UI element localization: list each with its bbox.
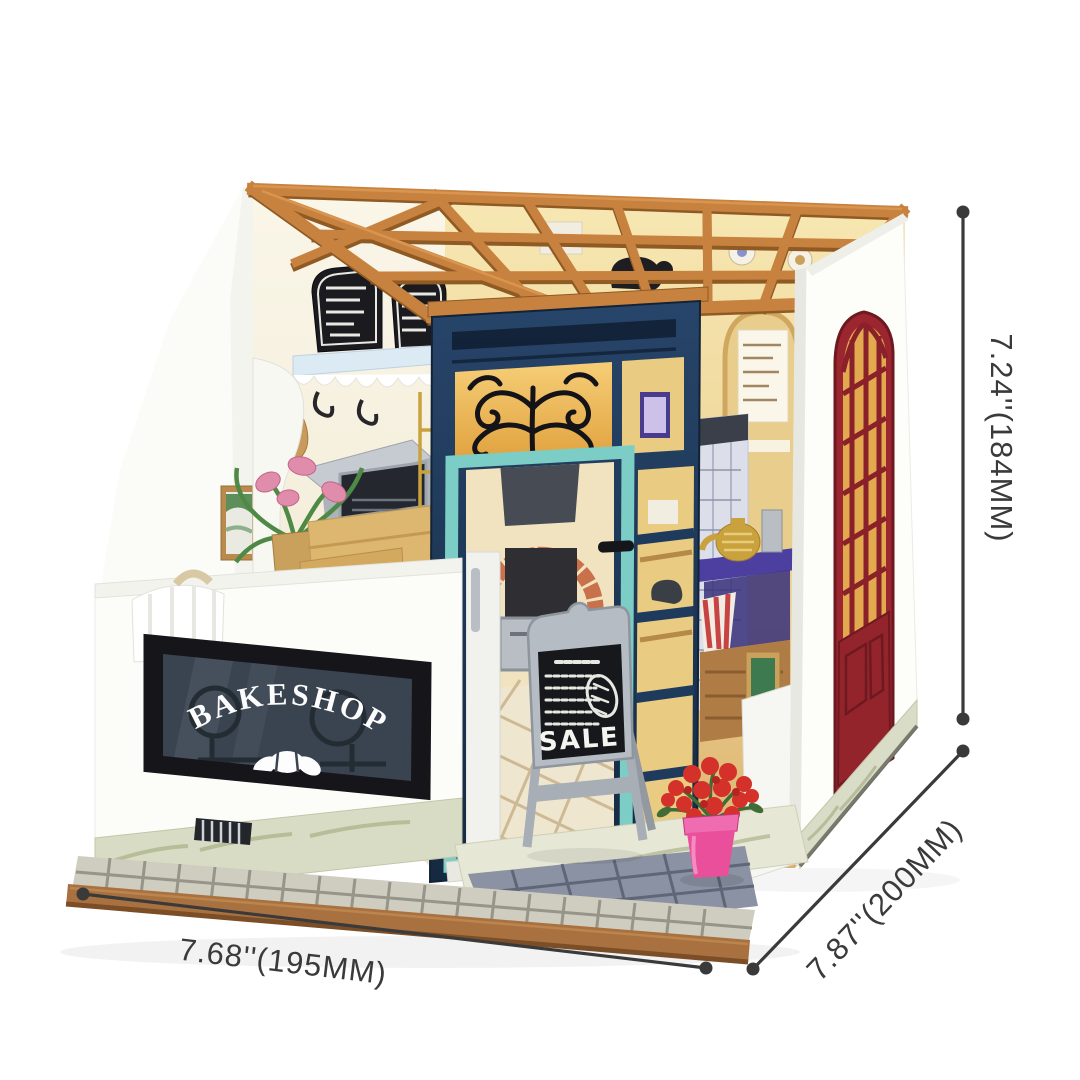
endpoint-dot	[77, 888, 90, 901]
endpoint-dot	[957, 206, 970, 219]
left-exterior-wall	[95, 187, 253, 642]
red-arched-door	[835, 312, 893, 795]
transom-side-pane	[622, 357, 684, 454]
silver-jug	[762, 510, 782, 552]
endpoint-dot	[747, 963, 760, 976]
endpoint-dot	[700, 962, 713, 975]
miniature-house: BAKESHOP	[66, 186, 917, 964]
product-dimension-image: BAKESHOP	[0, 0, 1080, 1080]
right-exterior-wall	[789, 214, 917, 868]
endpoint-dot	[957, 745, 970, 758]
height-dimension: 7.24''(184MM)	[957, 206, 1020, 726]
bakeshop-window-unit: BAKESHOP	[95, 558, 462, 896]
endpoint-dot	[957, 713, 970, 726]
sale-text: SALE	[538, 722, 621, 758]
scene-canvas: BAKESHOP	[0, 0, 1080, 1080]
bakeshop-window: BAKESHOP	[150, 641, 425, 793]
height-dimension-label: 7.24''(184MM)	[984, 333, 1019, 542]
door-handle	[598, 540, 635, 553]
